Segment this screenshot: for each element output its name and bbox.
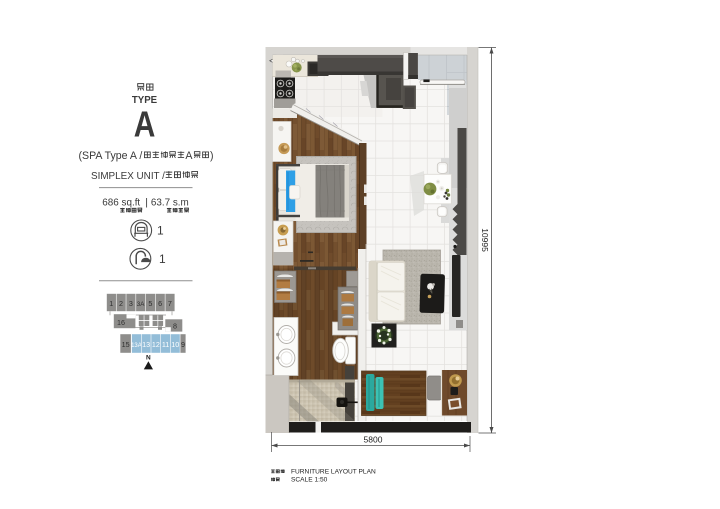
svg-text:8: 8 [173, 322, 177, 331]
svg-text:SIMPLEX UNIT /: SIMPLEX UNIT / [91, 171, 165, 182]
svg-text:12: 12 [152, 340, 160, 349]
svg-text:10995: 10995 [480, 228, 490, 252]
svg-text:9: 9 [181, 340, 185, 349]
svg-text:1: 1 [157, 224, 164, 238]
svg-text:(SPA Type A /: (SPA Type A / [79, 150, 143, 162]
svg-text:|: | [145, 197, 148, 209]
svg-text:2: 2 [119, 299, 123, 308]
svg-text:FURNITURE LAYOUT PLAN: FURNITURE LAYOUT PLAN [291, 468, 376, 475]
svg-text:3: 3 [129, 299, 133, 308]
svg-text:3A: 3A [137, 301, 145, 308]
svg-text:SCALE 1:50: SCALE 1:50 [291, 477, 328, 484]
svg-text:13: 13 [142, 340, 150, 349]
svg-text:15: 15 [122, 340, 130, 349]
svg-text:11: 11 [162, 340, 169, 349]
svg-text:A: A [134, 103, 156, 144]
svg-text:686 sq.ft: 686 sq.ft [102, 197, 140, 208]
svg-text:1: 1 [159, 252, 166, 266]
svg-text:A: A [185, 150, 193, 162]
svg-text:16: 16 [117, 318, 125, 327]
svg-text:63.7 s.m: 63.7 s.m [151, 197, 189, 208]
svg-text:5: 5 [148, 299, 152, 308]
svg-text:10: 10 [171, 340, 179, 349]
svg-text:): ) [210, 150, 214, 162]
svg-text:6: 6 [158, 299, 162, 308]
svg-text:13A: 13A [131, 343, 142, 349]
svg-text:7: 7 [168, 299, 172, 308]
svg-text:N: N [146, 355, 151, 362]
svg-text:5800: 5800 [364, 435, 383, 445]
svg-text:1: 1 [109, 299, 113, 308]
